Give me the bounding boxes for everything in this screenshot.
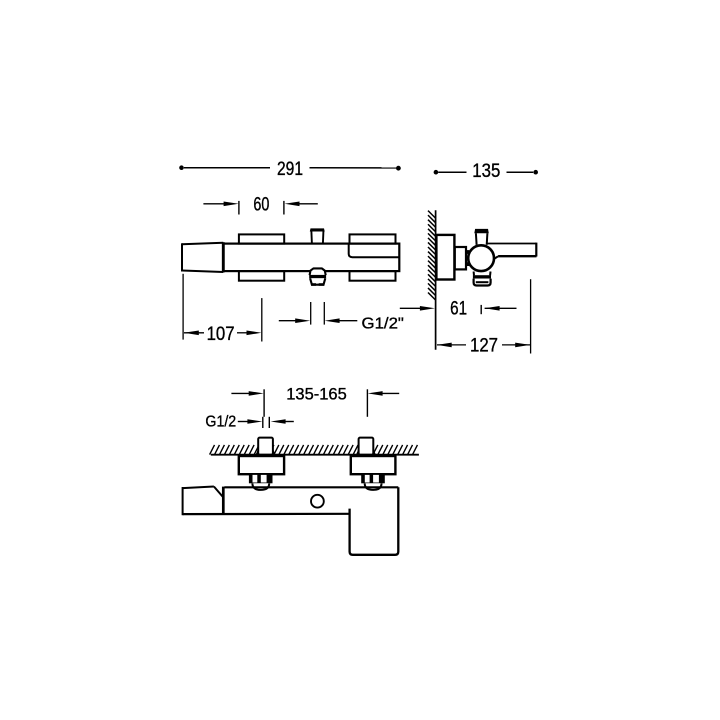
svg-text:135: 135 — [472, 161, 500, 182]
svg-text:G1/2: G1/2 — [205, 413, 236, 430]
svg-text:107: 107 — [207, 324, 235, 345]
svg-text:60: 60 — [253, 195, 269, 216]
svg-text:61: 61 — [450, 299, 467, 320]
svg-text:291: 291 — [277, 159, 303, 180]
svg-text:127: 127 — [470, 335, 498, 356]
svg-text:G1/2": G1/2" — [362, 315, 404, 332]
svg-text:135-165: 135-165 — [286, 384, 347, 403]
